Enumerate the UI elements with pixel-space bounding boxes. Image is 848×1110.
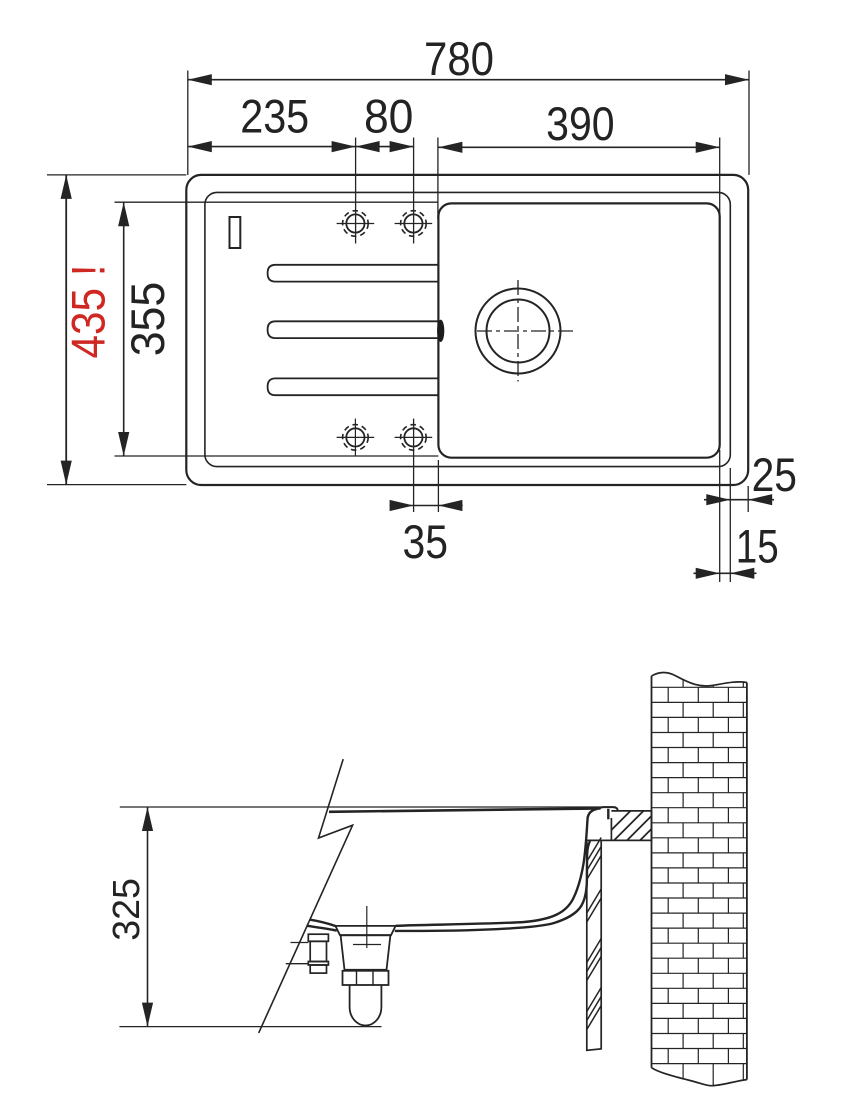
svg-text:35: 35 [403,515,449,568]
svg-text:15: 15 [736,519,779,572]
svg-text:355: 355 [121,282,174,357]
svg-text:780: 780 [424,32,494,85]
svg-text:435 !: 435 ! [62,265,115,359]
svg-text:325: 325 [106,878,148,941]
svg-text:390: 390 [546,97,615,150]
svg-text:235: 235 [240,90,309,143]
svg-text:25: 25 [752,448,797,501]
svg-text:80: 80 [364,90,414,143]
